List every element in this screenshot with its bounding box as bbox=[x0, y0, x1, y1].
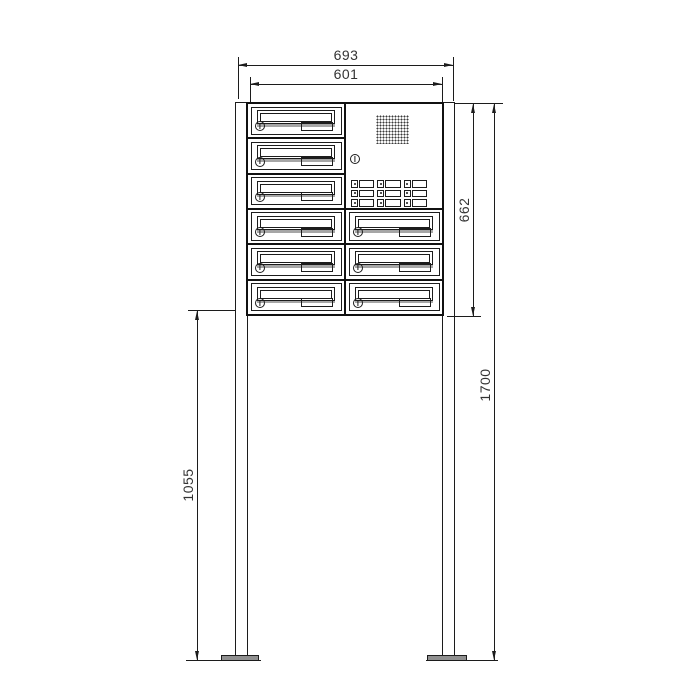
letter-flap-lip bbox=[260, 184, 332, 193]
call-button-name-plate bbox=[359, 199, 374, 207]
call-button bbox=[404, 199, 427, 207]
dim-line-unit-height bbox=[473, 104, 474, 316]
dim-arrow bbox=[471, 307, 475, 316]
mailbox-door bbox=[349, 248, 440, 276]
call-button-name-plate bbox=[385, 199, 400, 207]
bell-button-icon bbox=[351, 180, 358, 188]
mailbox-cell bbox=[248, 245, 344, 278]
call-button-name-plate bbox=[359, 180, 374, 188]
mailbox-door bbox=[251, 248, 342, 276]
lock-icon bbox=[255, 298, 265, 308]
name-plate bbox=[399, 228, 431, 237]
mailbox-cell bbox=[346, 210, 442, 243]
mailbox-cell bbox=[248, 210, 344, 243]
name-plate bbox=[301, 157, 333, 166]
bell-button-icon bbox=[377, 180, 384, 188]
call-button bbox=[404, 180, 427, 188]
lock-icon bbox=[353, 298, 363, 308]
lock-icon bbox=[353, 227, 363, 237]
mailbox-cabinet bbox=[246, 102, 444, 316]
intercom-panel bbox=[346, 104, 442, 208]
dim-arrow bbox=[471, 104, 475, 113]
lock-icon bbox=[350, 154, 360, 164]
lock-icon bbox=[255, 121, 265, 131]
mailbox-door bbox=[349, 212, 440, 240]
bell-button-icon bbox=[351, 199, 358, 207]
dim-line-stand-height bbox=[197, 311, 198, 660]
base-plate-left bbox=[221, 655, 259, 661]
name-plate bbox=[301, 228, 333, 237]
mailbox-door bbox=[251, 142, 342, 170]
name-plate bbox=[301, 298, 333, 307]
ext-line-unit-width-right bbox=[442, 77, 443, 102]
ext-line-unit-bottom bbox=[447, 316, 481, 317]
call-button bbox=[351, 180, 374, 188]
dim-outer-width-label: 693 bbox=[334, 47, 359, 63]
dim-arrow bbox=[195, 651, 199, 660]
name-plate bbox=[301, 263, 333, 272]
name-plate bbox=[399, 263, 431, 272]
lock-icon bbox=[255, 192, 265, 202]
bell-button-icon bbox=[351, 190, 358, 198]
dim-arrow bbox=[238, 63, 247, 67]
dim-arrow bbox=[492, 651, 496, 660]
lock-icon bbox=[255, 263, 265, 273]
ext-line-outer-width-right bbox=[453, 57, 454, 101]
dim-line-total-height bbox=[494, 104, 495, 660]
letter-flap-lip bbox=[260, 148, 332, 157]
letter-flap-lip bbox=[260, 254, 332, 263]
dim-line-outer-width bbox=[238, 65, 453, 66]
lock-icon bbox=[353, 263, 363, 273]
mailbox-cell bbox=[248, 281, 344, 314]
technical-drawing-canvas: 693 601 662 1700 1055 bbox=[0, 0, 700, 700]
dim-arrow bbox=[433, 82, 442, 86]
dim-arrow bbox=[250, 82, 259, 86]
mailbox-cell bbox=[248, 175, 344, 208]
bell-button-icon bbox=[377, 199, 384, 207]
call-button bbox=[377, 190, 400, 198]
mailbox-door bbox=[349, 283, 440, 311]
bell-button-icon bbox=[404, 199, 411, 207]
call-button bbox=[377, 180, 400, 188]
call-button bbox=[377, 199, 400, 207]
call-button bbox=[351, 199, 374, 207]
base-plate-right bbox=[427, 655, 467, 661]
call-button-name-plate bbox=[412, 190, 427, 198]
letter-flap-lip bbox=[358, 290, 430, 299]
letter-flap-lip bbox=[260, 219, 332, 228]
dim-total-height-label: 1700 bbox=[477, 368, 493, 401]
letter-flap-lip bbox=[358, 219, 430, 228]
dim-line-unit-width bbox=[250, 84, 442, 85]
dim-unit-width-label: 601 bbox=[334, 66, 359, 82]
dim-arrow bbox=[195, 311, 199, 320]
mailbox-cell bbox=[346, 281, 442, 314]
dim-unit-height-label: 662 bbox=[456, 198, 472, 223]
call-button-grid bbox=[351, 180, 427, 207]
call-button-name-plate bbox=[412, 180, 427, 188]
name-plate bbox=[301, 192, 333, 201]
call-button-name-plate bbox=[412, 199, 427, 207]
mailbox-door bbox=[251, 177, 342, 205]
lock-icon bbox=[255, 157, 265, 167]
call-button-name-plate bbox=[359, 190, 374, 198]
ext-line-unit-width-left bbox=[250, 77, 251, 102]
dim-arrow bbox=[444, 63, 453, 67]
lock-icon bbox=[255, 227, 265, 237]
bell-button-icon bbox=[404, 180, 411, 188]
mailbox-cell bbox=[248, 104, 344, 137]
call-button bbox=[351, 190, 374, 198]
mailbox-door bbox=[251, 107, 342, 135]
mailbox-door bbox=[251, 283, 342, 311]
call-button-name-plate bbox=[385, 190, 400, 198]
mailbox-cell bbox=[346, 245, 442, 278]
name-plate bbox=[399, 298, 431, 307]
mailbox-door bbox=[251, 212, 342, 240]
letter-flap-lip bbox=[260, 290, 332, 299]
dim-stand-height-label: 1055 bbox=[180, 468, 196, 501]
mailbox-cell bbox=[248, 139, 344, 172]
bell-button-icon bbox=[377, 190, 384, 198]
speaker-grille-icon bbox=[376, 115, 409, 144]
call-button-name-plate bbox=[385, 180, 400, 188]
bell-button-icon bbox=[404, 190, 411, 198]
letter-flap-lip bbox=[260, 113, 332, 122]
dim-arrow bbox=[492, 104, 496, 113]
letter-flap-lip bbox=[358, 254, 430, 263]
call-button bbox=[404, 190, 427, 198]
name-plate bbox=[301, 122, 333, 131]
